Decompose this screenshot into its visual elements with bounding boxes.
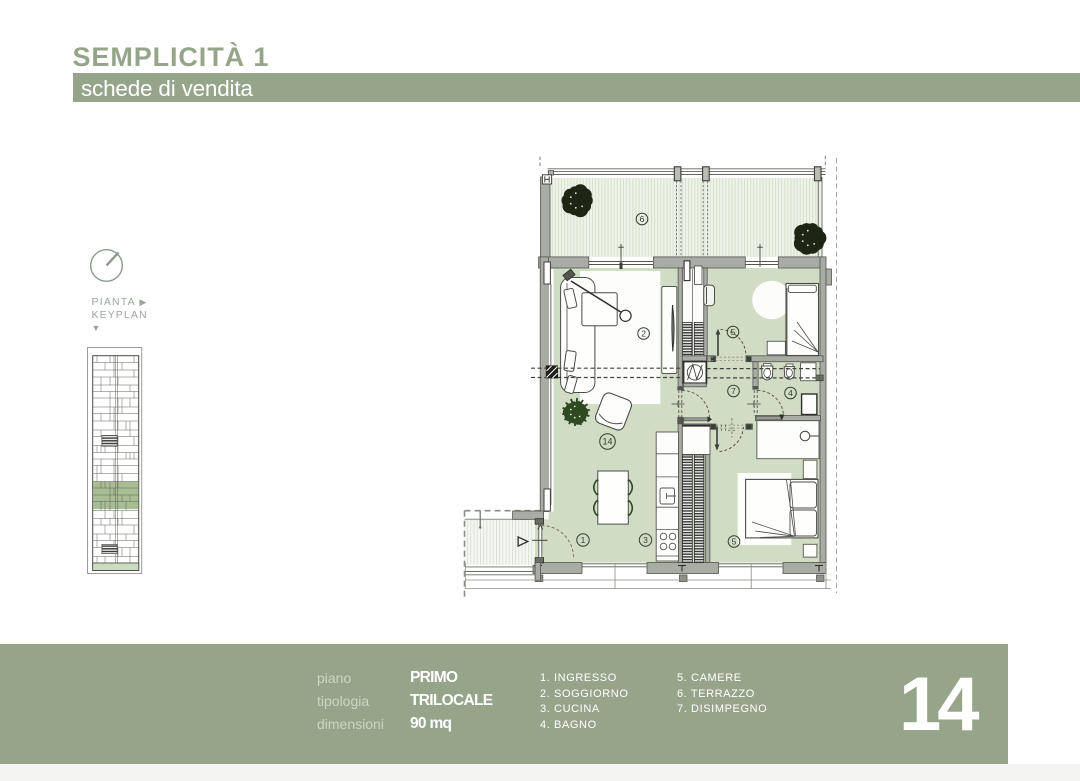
svg-text:5: 5 bbox=[731, 327, 736, 337]
svg-text:7: 7 bbox=[731, 386, 736, 396]
svg-text:5: 5 bbox=[732, 537, 737, 547]
svg-text:14: 14 bbox=[602, 437, 612, 447]
svg-text:6: 6 bbox=[640, 214, 645, 224]
svg-text:3: 3 bbox=[643, 535, 648, 545]
svg-text:4: 4 bbox=[788, 388, 793, 398]
svg-text:1: 1 bbox=[581, 535, 586, 545]
svg-text:2: 2 bbox=[641, 329, 646, 339]
